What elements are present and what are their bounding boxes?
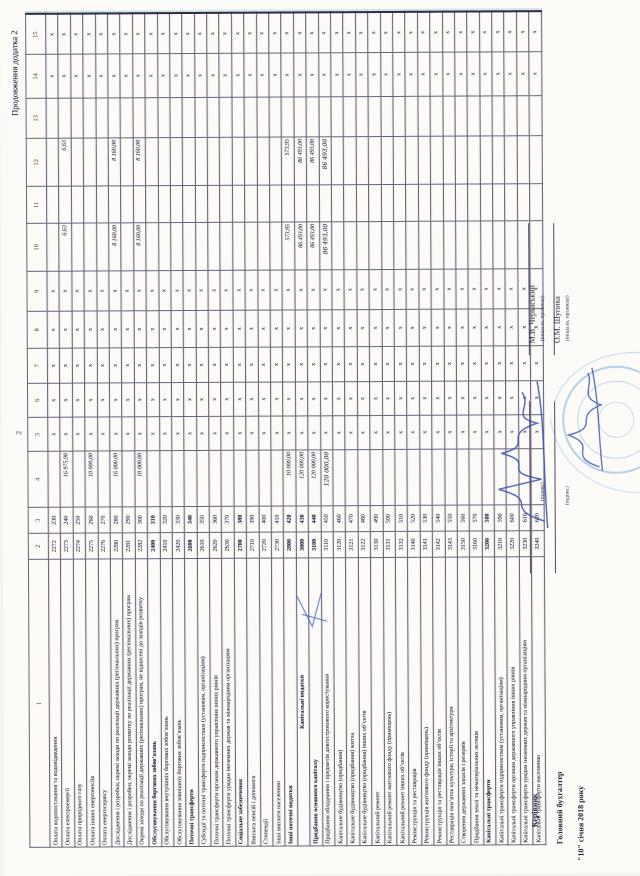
x-mark-cell: х [159, 417, 172, 451]
empty-cell [182, 97, 195, 137]
x-mark-cell: х [307, 270, 320, 310]
x-mark-cell: х [456, 346, 469, 381]
empty-cell [46, 186, 59, 223]
empty-cell [356, 97, 369, 137]
kekv-code-cell: 2280 [110, 533, 123, 559]
kekv-code-cell: 2710 [247, 532, 260, 558]
amount-cell-col4 [73, 451, 86, 507]
x-mark-cell: х [320, 270, 333, 310]
x-mark-cell: х [47, 311, 60, 348]
empty-cell [307, 185, 320, 222]
x-mark-cell: х [481, 269, 494, 309]
kekv-code-cell: 2282 [135, 533, 148, 559]
x-mark-cell: х [134, 311, 147, 348]
x-mark-cell: х [357, 270, 370, 310]
x-mark-cell: х [258, 347, 271, 382]
amount-cell-col12: 8 160,00 [108, 138, 121, 186]
row-code-cell: 270 [98, 507, 111, 533]
amount-cell-col12 [430, 136, 443, 184]
amount-cell-col10 [245, 222, 258, 270]
x-mark-cell: х [234, 416, 247, 450]
kekv-code-cell: 3122 [358, 532, 371, 558]
x-mark-cell: х [407, 346, 420, 381]
x-mark-cell: х [134, 348, 147, 383]
amount-cell-col4 [221, 450, 234, 506]
kekv-code-cell: 3142 [432, 531, 445, 557]
x-mark-cell: х [134, 271, 147, 311]
x-mark-cell: х [158, 271, 171, 311]
amount-cell-col12 [368, 137, 381, 185]
amount-cell-col10: 86 493,00 [319, 222, 332, 270]
row-code-cell: 500 [383, 505, 396, 531]
x-mark-cell: х [406, 309, 419, 346]
empty-cell [257, 185, 270, 222]
amount-cell-col4: 10 000,00 [283, 450, 296, 506]
table-body: Оплата водопостачання та водовідведення2… [46, 12, 546, 848]
row-code-cell: 290 [122, 507, 135, 533]
scanned-page: Продовження додатка 2 2 1234567891011121… [0, 0, 640, 876]
x-mark-cell: х [46, 14, 59, 54]
amount-cell-col10 [505, 221, 518, 269]
empty-cell [145, 98, 158, 138]
amount-cell-col4 [97, 451, 110, 507]
kekv-code-cell: 2272 [48, 533, 61, 559]
empty-cell [220, 185, 233, 222]
x-mark-cell: х [419, 381, 432, 415]
row-code-cell: 510 [395, 505, 408, 531]
amount-cell-col4 [395, 449, 408, 505]
kekv-code-cell: 3141 [420, 531, 433, 557]
x-mark-cell: х [97, 348, 110, 383]
empty-cell [146, 186, 159, 223]
row-code-cell: 330 [172, 507, 185, 533]
empty-cell [493, 184, 506, 221]
x-mark-cell: х [281, 53, 294, 97]
x-mark-cell: х [381, 269, 394, 309]
x-mark-cell: х [345, 310, 358, 347]
x-mark-cell: х [370, 416, 383, 450]
x-mark-cell: х [295, 382, 308, 416]
empty-cell [530, 184, 543, 221]
amount-cell-col4: 120 000,00 [296, 450, 309, 506]
x-mark-cell: х [431, 309, 444, 346]
amount-cell-col12 [158, 138, 171, 186]
x-mark-cell: х [320, 382, 333, 416]
x-mark-cell: х [97, 383, 110, 417]
x-mark-cell: х [344, 270, 357, 310]
amount-cell-col10 [208, 222, 221, 270]
head-sign-caption: (підпис) [540, 482, 546, 501]
amount-cell-col10 [344, 222, 357, 270]
row-code-cell: 360 [209, 506, 222, 532]
kekv-code-cell: 3140 [408, 531, 421, 557]
x-mark-cell: х [85, 383, 98, 417]
kekv-code-cell: 3143 [445, 531, 458, 557]
x-mark-cell: х [271, 416, 284, 450]
x-mark-cell: х [194, 53, 207, 97]
column-number: 11 [26, 186, 46, 223]
x-mark-cell: х [456, 381, 469, 415]
amount-cell-col4: 120 000,00 [308, 450, 321, 506]
empty-cell [195, 185, 208, 222]
x-mark-cell: х [108, 54, 121, 98]
head-name-caption: (ініціали, прізвище) [540, 295, 546, 341]
x-mark-cell: х [122, 383, 135, 417]
x-mark-cell: х [295, 270, 308, 310]
empty-cell [269, 97, 282, 137]
amount-cell-col12 [145, 138, 158, 186]
x-mark-cell: х [505, 269, 518, 309]
x-mark-cell: х [419, 346, 432, 381]
x-mark-cell: х [233, 382, 246, 416]
x-mark-cell: х [245, 270, 258, 310]
row-code-cell: 260 [85, 507, 98, 533]
kekv-code-cell: 2281 [123, 533, 136, 559]
x-mark-cell: х [58, 14, 71, 54]
empty-cell [430, 96, 443, 136]
x-mark-cell: х [493, 269, 506, 309]
x-mark-cell: х [84, 271, 97, 311]
x-mark-cell: х [172, 417, 185, 451]
x-mark-cell: х [122, 348, 135, 383]
x-mark-cell: х [531, 381, 544, 415]
x-mark-cell: х [145, 54, 158, 98]
x-mark-cell: х [430, 52, 443, 96]
empty-cell [468, 184, 481, 221]
x-mark-cell: х [97, 311, 110, 348]
x-mark-cell: х [455, 52, 468, 96]
empty-cell [294, 185, 307, 222]
row-code-cell: 430 [296, 506, 309, 532]
empty-cell [418, 184, 431, 221]
x-mark-cell: х [357, 416, 370, 450]
column-number: 8 [27, 311, 47, 348]
empty-cell [158, 98, 171, 138]
amount-cell-col4 [370, 450, 383, 506]
x-mark-cell: х [516, 12, 529, 52]
empty-cell [84, 186, 97, 223]
x-mark-cell: х [146, 271, 159, 311]
x-mark-cell: х [456, 269, 469, 309]
amount-cell-col12 [257, 137, 270, 185]
page-number: 2 [14, 431, 23, 435]
x-mark-cell: х [343, 13, 356, 53]
empty-cell [96, 186, 109, 223]
x-mark-cell: х [479, 12, 492, 52]
x-mark-cell: х [60, 383, 73, 417]
amount-cell-col10: 86 493,00 [294, 222, 307, 270]
amount-cell-col10 [468, 221, 481, 269]
x-mark-cell: х [110, 417, 123, 451]
x-mark-cell: х [283, 347, 296, 382]
x-mark-cell: х [60, 417, 73, 451]
amount-cell-col10 [84, 223, 97, 271]
x-mark-cell: х [258, 416, 271, 450]
x-mark-cell: х [394, 269, 407, 309]
kekv-code-cell: 3100 [308, 532, 321, 558]
amount-cell-col10 [530, 221, 543, 269]
amount-cell-col12: 86 493,00 [294, 137, 307, 185]
amount-cell-col4 [345, 450, 358, 506]
x-mark-cell: х [506, 415, 519, 449]
empty-cell [343, 97, 356, 137]
kekv-code-cell: 3131 [383, 531, 396, 557]
x-mark-cell: х [345, 416, 358, 450]
row-code-cell: 620 [531, 505, 544, 531]
kekv-code-cell: 3130 [370, 532, 383, 558]
x-mark-cell: х [394, 381, 407, 415]
x-mark-cell: х [207, 13, 220, 53]
x-mark-cell: х [96, 271, 109, 311]
x-mark-cell: х [221, 382, 234, 416]
amount-cell-col12 [344, 137, 357, 185]
x-mark-cell: х [430, 12, 443, 52]
x-mark-cell: х [170, 54, 183, 98]
amount-cell-col12 [71, 138, 84, 186]
empty-cell [83, 98, 96, 138]
amount-cell-col10 [394, 221, 407, 269]
empty-cell [381, 184, 394, 221]
amount-cell-col4 [147, 451, 160, 507]
empty-cell [245, 185, 258, 222]
x-mark-cell: х [494, 415, 507, 449]
x-mark-cell: х [481, 346, 494, 381]
x-mark-cell: х [134, 383, 147, 417]
x-mark-cell: х [184, 382, 197, 416]
x-mark-cell: х [120, 14, 133, 54]
amount-cell-col10 [220, 222, 233, 270]
x-mark-cell: х [208, 270, 221, 310]
kekv-code-cell: 2630 [222, 532, 235, 558]
accountant-name-caption: (ініціали, прізвище) [565, 295, 571, 341]
x-mark-cell: х [456, 309, 469, 346]
x-mark-cell: х [469, 415, 482, 449]
x-mark-cell: х [295, 416, 308, 450]
column-number: 3 [28, 507, 48, 533]
amount-cell-col12 [220, 137, 233, 185]
x-mark-cell: х [417, 12, 430, 52]
x-mark-cell: х [121, 271, 134, 311]
column-number: 9 [27, 271, 47, 311]
amount-cell-col12 [505, 136, 518, 184]
x-mark-cell: х [72, 348, 85, 383]
kekv-code-cell: 3120 [333, 532, 346, 558]
x-mark-cell: х [171, 383, 184, 417]
accountant-name-line [553, 223, 555, 355]
x-mark-cell: х [331, 53, 344, 97]
x-mark-cell: х [529, 12, 542, 52]
x-mark-cell: х [442, 52, 455, 96]
x-mark-cell: х [493, 346, 506, 381]
row-code-cell: 310 [147, 507, 160, 533]
empty-cell [480, 184, 493, 221]
amount-cell-col10 [456, 221, 469, 269]
x-mark-cell: х [108, 14, 121, 54]
x-mark-cell: х [83, 54, 96, 98]
x-mark-cell: х [146, 311, 159, 348]
row-code-cell: 250 [73, 507, 86, 533]
x-mark-cell: х [320, 416, 333, 450]
x-mark-cell: х [221, 310, 234, 347]
x-mark-cell: х [504, 52, 517, 96]
amount-cell-col12 [269, 137, 282, 185]
x-mark-cell: х [318, 53, 331, 97]
kekv-code-cell: 2730 [271, 532, 284, 558]
amount-cell-col4 [172, 451, 185, 507]
x-mark-cell: х [357, 310, 370, 347]
x-mark-cell: х [380, 52, 393, 96]
empty-cell [455, 184, 468, 221]
stamp-core-ring [598, 402, 634, 438]
amount-cell-col4 [494, 449, 507, 505]
x-mark-cell: х [183, 310, 196, 347]
x-mark-cell: х [60, 311, 73, 348]
amount-cell-col4 [159, 451, 172, 507]
x-mark-cell: х [147, 383, 160, 417]
round-stamp [562, 365, 640, 474]
x-mark-cell: х [382, 346, 395, 381]
empty-cell [529, 96, 542, 136]
amount-cell-col10 [195, 222, 208, 270]
empty-cell [455, 96, 468, 136]
amount-cell-col12: 6,63 [59, 138, 72, 186]
amount-cell-col4 [382, 449, 395, 505]
amount-cell-col10: 8 160,00 [133, 223, 146, 271]
kekv-code-cell: 3150 [457, 531, 470, 557]
empty-cell [319, 185, 332, 222]
empty-cell [381, 96, 394, 136]
x-mark-cell: х [184, 347, 197, 382]
x-mark-cell: х [269, 53, 282, 97]
empty-cell [71, 186, 84, 223]
row-code-cell: 300 [135, 507, 148, 533]
x-mark-cell: х [72, 311, 85, 348]
amount-cell-col4: 10 000,00 [135, 451, 148, 507]
x-mark-cell: х [132, 14, 145, 54]
empty-cell [505, 184, 518, 221]
x-mark-cell: х [333, 416, 346, 450]
amount-cell-col10: 86 493,00 [307, 222, 320, 270]
amount-cell-col12 [468, 136, 481, 184]
amount-cell-col4 [271, 450, 284, 506]
accountant-sign-line [554, 401, 556, 573]
column-number: 12 [26, 138, 46, 186]
x-mark-cell: х [209, 416, 222, 450]
x-mark-cell: х [70, 14, 83, 54]
x-mark-cell: х [256, 13, 269, 53]
row-code-cell: 410 [271, 506, 284, 532]
x-mark-cell: х [171, 348, 184, 383]
x-mark-cell: х [295, 310, 308, 347]
amount-cell-col10 [96, 223, 109, 271]
amount-cell-col12 [96, 138, 109, 186]
kekv-code-cell: 3220 [507, 531, 520, 557]
row-code-cell: 470 [346, 506, 359, 532]
x-mark-cell: х [394, 309, 407, 346]
amount-cell-col12 [393, 136, 406, 184]
x-mark-cell: х [196, 416, 209, 450]
amount-cell-col4 [469, 449, 482, 505]
x-mark-cell: х [283, 310, 296, 347]
amount-cell-col12 [356, 137, 369, 185]
row-code-cell: 560 [457, 505, 470, 531]
x-mark-cell: х [233, 310, 246, 347]
amount-cell-col4 [333, 450, 346, 506]
amount-cell-col12: 86 493,00 [319, 137, 332, 185]
x-mark-cell: х [469, 381, 482, 415]
column-number: 15 [26, 14, 46, 54]
x-mark-cell: х [493, 309, 506, 346]
amount-cell-col10 [71, 223, 84, 271]
row-code-cell: 480 [358, 506, 371, 532]
empty-cell [331, 185, 344, 222]
amount-cell-col4 [420, 449, 433, 505]
x-mark-cell: х [233, 347, 246, 382]
column-number: 13 [26, 98, 46, 138]
amount-cell-col12 [244, 137, 257, 185]
empty-cell [443, 96, 456, 136]
amount-cell-col12 [492, 136, 505, 184]
x-mark-cell: х [444, 346, 457, 381]
amount-cell-col10 [171, 223, 184, 271]
kekv-code-cell: 2273 [61, 533, 74, 559]
empty-cell [133, 186, 146, 223]
x-mark-cell: х [368, 13, 381, 53]
x-mark-cell: х [208, 347, 221, 382]
amount-cell-col4: 120 000,00 [320, 450, 333, 506]
x-mark-cell: х [270, 347, 283, 382]
x-mark-cell: х [196, 270, 209, 310]
x-mark-cell: х [432, 415, 445, 449]
x-mark-cell: х [369, 347, 382, 382]
date-line: "10" січня 2018 року [576, 786, 585, 861]
x-mark-cell: х [60, 348, 73, 383]
x-mark-cell: х [332, 310, 345, 347]
empty-cell [59, 186, 72, 223]
kekv-code-cell: 3110 [321, 532, 334, 558]
kekv-code-cell: 3000 [296, 532, 309, 558]
empty-cell [244, 97, 257, 137]
empty-cell [158, 186, 171, 223]
x-mark-cell: х [256, 53, 269, 97]
x-mark-cell: х [208, 310, 221, 347]
row-code-cell: 570 [469, 505, 482, 531]
x-mark-cell: х [481, 309, 494, 346]
empty-cell [219, 97, 232, 137]
row-code-cell: 520 [407, 505, 420, 531]
x-mark-cell: х [357, 382, 370, 416]
x-mark-cell: х [468, 309, 481, 346]
amount-cell-col12 [170, 138, 183, 186]
x-mark-cell: х [209, 382, 222, 416]
kekv-code-cell: 3200 [482, 531, 495, 557]
x-mark-cell: х [357, 347, 370, 382]
x-mark-cell: х [95, 54, 108, 98]
empty-cell [504, 96, 517, 136]
x-mark-cell: х [293, 13, 306, 53]
amount-cell-col4 [358, 450, 371, 506]
x-mark-cell: х [382, 415, 395, 449]
empty-cell [517, 96, 530, 136]
amount-cell-col10 [183, 222, 196, 270]
x-mark-cell: х [183, 270, 196, 310]
empty-cell [431, 184, 444, 221]
amount-cell-col10 [493, 221, 506, 269]
x-mark-cell: х [479, 52, 492, 96]
x-mark-cell: х [146, 348, 159, 383]
amount-cell-col4 [234, 450, 247, 506]
x-mark-cell: х [419, 415, 432, 449]
